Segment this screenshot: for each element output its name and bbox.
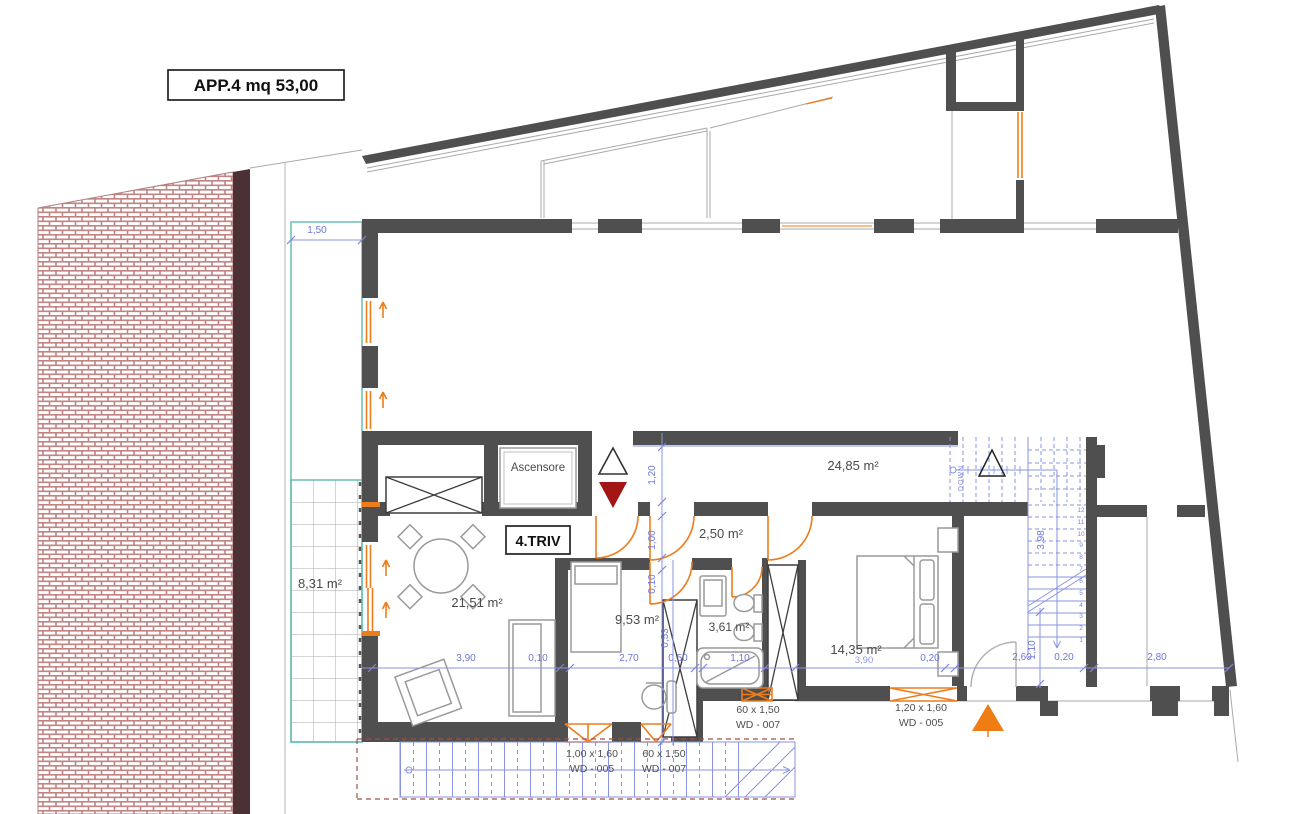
living-bedroom-divider: [555, 558, 568, 742]
plan-title: APP.4 mq 53,00: [194, 76, 318, 95]
nightstand: [938, 652, 958, 676]
dim-terrace: 1,50: [307, 225, 327, 236]
window1-size: 1,00 x 1,60: [566, 748, 618, 760]
dim-hallway-h: 1,00: [647, 530, 658, 550]
window2-size: 60 x 1,50: [642, 748, 685, 760]
area-hallway: 2,50 m²: [699, 526, 744, 541]
svg-text:9: 9: [1079, 542, 1083, 549]
right-sloped-wall: [1155, 5, 1237, 687]
svg-text:12: 12: [1077, 507, 1085, 514]
dim-stair-v: 1,10: [1027, 640, 1038, 660]
pillow: [920, 604, 934, 644]
landing-symbols: [599, 448, 627, 508]
dim-bath-w: 1,10: [730, 653, 750, 664]
svg-text:4: 4: [1079, 602, 1083, 609]
door-bathroom: [732, 567, 762, 597]
stairs-down-label: DOWN: [958, 465, 965, 491]
svg-text:5: 5: [1079, 590, 1083, 597]
area-bathroom: 3,61 m²: [709, 620, 750, 634]
svg-text:6: 6: [1079, 578, 1083, 585]
up-triangle-icon: [599, 448, 627, 474]
svg-text:10: 10: [1077, 531, 1085, 538]
dim-right-room: 2,80: [1147, 652, 1167, 663]
window2-code: WD - 007: [642, 763, 687, 775]
svg-text:8: 8: [1079, 554, 1083, 561]
walls: [362, 5, 1237, 742]
svg-text:2: 2: [1079, 625, 1083, 632]
down-triangle-icon: [599, 482, 627, 508]
orange-triangle-icon: [972, 704, 1004, 731]
apartment-tag: 4.TRIV: [515, 534, 560, 550]
window4-size: 1,20 x 1,60: [895, 702, 947, 714]
site-dark-band: [233, 169, 250, 814]
entry-marker: [972, 704, 1004, 737]
dim-shaft-h: 0,53: [660, 628, 671, 648]
window3-code: WD - 007: [736, 719, 781, 731]
svg-text:7: 7: [1079, 566, 1083, 573]
svg-text:3: 3: [1079, 613, 1083, 620]
svg-text:1: 1: [1079, 637, 1083, 644]
window4-code: WD - 005: [899, 717, 944, 729]
window1-code: WD - 005: [570, 763, 615, 775]
dim-wall-d: 0,10: [647, 574, 658, 594]
interior-stairs: DOWN 3,98 1 2 3 4 5 6 7 8 9 10 11 12: [950, 437, 1086, 655]
floor-plan-drawing: Ascensore: [0, 0, 1300, 814]
apartment-tag-box: 4.TRIV: [506, 526, 570, 554]
door-landing: [596, 516, 638, 558]
window-sill-4: [890, 688, 957, 701]
door-bedroom2: [768, 516, 812, 560]
armchair: [395, 659, 462, 726]
area-living: 21,51 m²: [451, 595, 503, 610]
area-bedroom2: 14,35 m²: [830, 642, 882, 657]
terrace-grid: [291, 480, 362, 742]
area-bedroom1: 9,53 m²: [615, 612, 660, 627]
single-bed: [571, 562, 621, 652]
title-box: APP.4 mq 53,00: [168, 70, 344, 100]
round-table: [414, 539, 468, 593]
dim-flight: 3,98: [1036, 530, 1047, 550]
dim-corridor-h: 1,20: [647, 465, 658, 485]
living-furniture: [395, 525, 555, 726]
svg-text:11: 11: [1078, 519, 1085, 526]
nightstand: [938, 528, 958, 552]
elevator-label: Ascensore: [511, 462, 565, 474]
dim-shaft-w: 0,50: [668, 653, 688, 664]
dim-wall-c: 0,20: [1054, 652, 1074, 663]
stair-numbers: 1 2 3 4 5 6 7 8 9 10 11 12: [1077, 507, 1085, 644]
terrace: [291, 222, 362, 742]
elevator: Ascensore: [500, 448, 576, 508]
toilet: [754, 595, 762, 612]
dim-wall-b: 0,20: [920, 653, 940, 664]
x-box-parapet: [386, 477, 482, 513]
entrance-door: [971, 642, 1016, 687]
pillow: [920, 560, 934, 600]
dim-living-w: 3,90: [456, 653, 476, 664]
stair-triangle-icon: [979, 450, 1005, 476]
area-upper-room: 24,85 m²: [827, 458, 879, 473]
dim-wall-a: 0,10: [528, 653, 548, 664]
x-shaft-right: [768, 565, 798, 700]
eave-line: [250, 150, 362, 168]
area-terrace: 8,31 m²: [298, 576, 343, 591]
window3-size: 60 x 1,50: [736, 704, 779, 716]
top-sloped-wall: [362, 5, 1164, 164]
bidet: [754, 624, 762, 641]
dim-bedroom1-w: 2,70: [619, 653, 639, 664]
